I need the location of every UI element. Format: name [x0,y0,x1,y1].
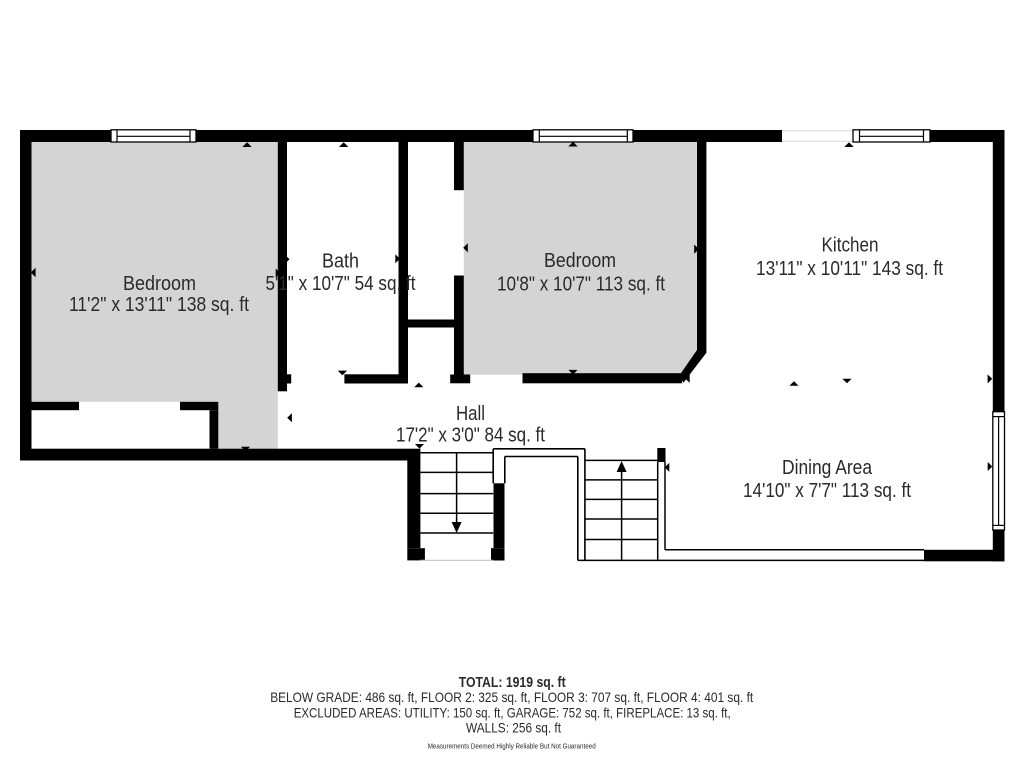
svg-text:14'10" x 7'7" 113 sq. ft: 14'10" x 7'7" 113 sq. ft [743,479,911,502]
svg-text:WALLS: 256 sq. ft: WALLS: 256 sq. ft [466,720,561,736]
svg-text:5'1" x 10'7" 54 sq. ft: 5'1" x 10'7" 54 sq. ft [266,272,416,295]
svg-text:Kitchen: Kitchen [822,234,879,257]
svg-text:Hall: Hall [456,402,485,425]
svg-text:EXCLUDED AREAS: UTILITY: 150 s: EXCLUDED AREAS: UTILITY: 150 sq. ft, GAR… [294,705,731,721]
svg-text:17'2" x 3'0" 84 sq. ft: 17'2" x 3'0" 84 sq. ft [396,423,545,446]
svg-text:Bath: Bath [322,249,359,272]
svg-text:Bedroom: Bedroom [544,249,616,272]
svg-text:Bedroom: Bedroom [123,272,196,295]
svg-text:11'2" x 13'11" 138 sq. ft: 11'2" x 13'11" 138 sq. ft [69,293,249,316]
svg-text:Measurements Deemed Highly Rel: Measurements Deemed Highly Reliable But … [428,742,596,751]
svg-text:10'8" x 10'7" 113 sq. ft: 10'8" x 10'7" 113 sq. ft [497,273,665,296]
svg-text:Dining Area: Dining Area [782,456,873,479]
svg-text:BELOW GRADE: 486 sq. ft, FLOOR: BELOW GRADE: 486 sq. ft, FLOOR 2: 325 sq… [270,689,753,705]
svg-text:13'11" x 10'11" 143 sq. ft: 13'11" x 10'11" 143 sq. ft [756,257,943,280]
